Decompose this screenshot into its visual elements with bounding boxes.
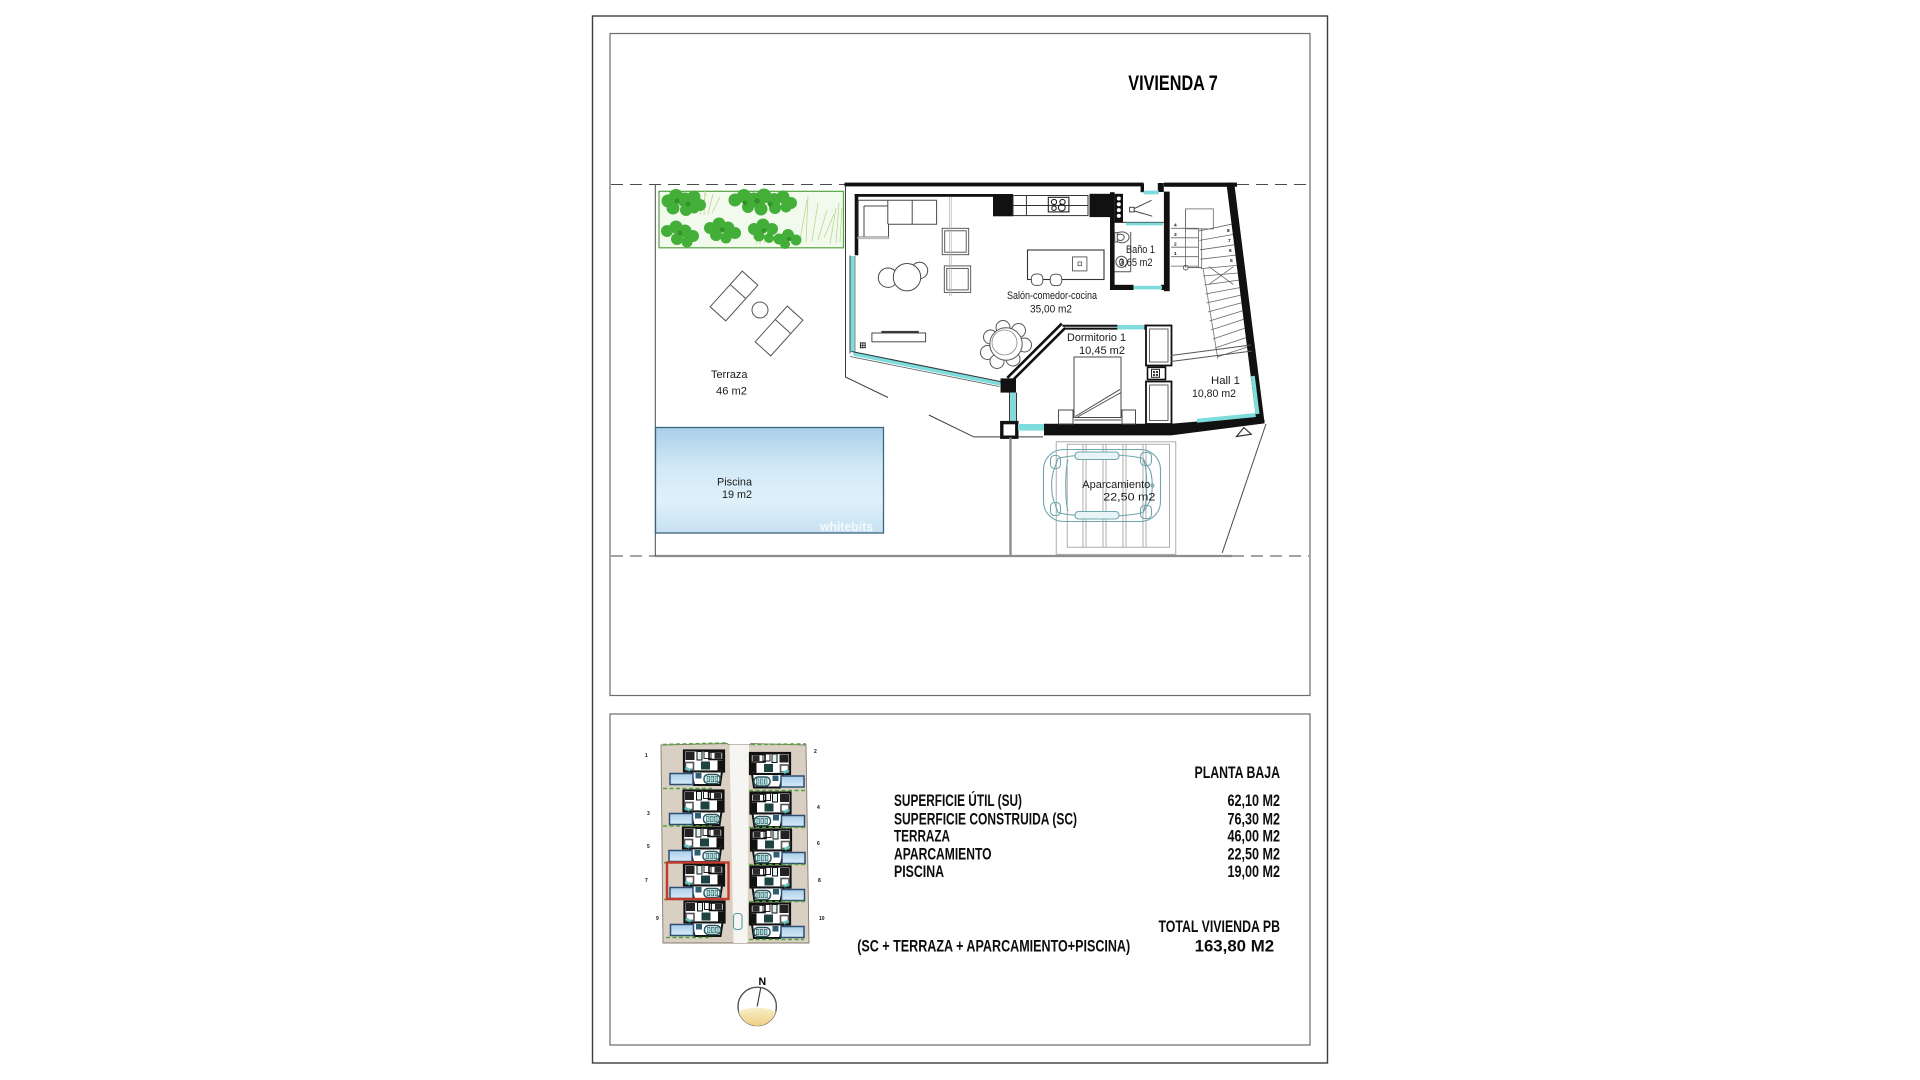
svg-text:5: 5 [647,844,650,850]
svg-text:2: 2 [1174,242,1177,248]
svg-text:VIVIENDA 7: VIVIENDA 7 [1128,71,1218,95]
svg-text:Terraza: Terraza [711,369,748,381]
svg-text:Dormitorio 1: Dormitorio 1 [1067,332,1126,344]
svg-text:7: 7 [645,878,648,884]
svg-text:2: 2 [814,749,817,755]
svg-text:6: 6 [1229,248,1232,254]
svg-text:9: 9 [656,916,659,922]
svg-text:Hall 1: Hall 1 [1211,375,1240,387]
svg-text:TOTAL VIVIENDA PB: TOTAL VIVIENDA PB [1159,918,1281,936]
svg-text:46,00 M2: 46,00 M2 [1228,828,1281,846]
svg-text:3: 3 [1174,232,1177,238]
svg-text:Aparcamiento: Aparcamiento [1082,479,1150,491]
svg-text:22,50 m2: 22,50 m2 [1103,492,1155,504]
svg-text:35,00 m2: 35,00 m2 [1030,304,1072,316]
svg-text:8: 8 [1227,228,1230,234]
svg-text:10: 10 [819,916,825,922]
svg-text:62,10 M2: 62,10 M2 [1228,792,1281,810]
svg-text:4: 4 [1174,223,1177,229]
svg-text:22,50 M2: 22,50 M2 [1228,846,1281,864]
svg-text:whitebits: whitebits [819,519,873,534]
svg-text:1: 1 [1174,251,1177,257]
svg-text:(SC + TERRAZA + APARCAMIENTO+P: (SC + TERRAZA + APARCAMIENTO+PISCINA) [857,938,1130,956]
svg-text:1: 1 [645,753,648,759]
svg-text:163,80 M2: 163,80 M2 [1195,938,1275,956]
svg-text:6: 6 [817,841,820,847]
svg-text:76,30 M2: 76,30 M2 [1228,811,1281,829]
svg-text:46 m2: 46 m2 [716,386,747,398]
svg-text:10,80 m2: 10,80 m2 [1192,388,1236,400]
svg-text:7: 7 [1228,238,1231,244]
svg-text:APARCAMIENTO: APARCAMIENTO [894,846,992,864]
svg-text:PLANTA BAJA: PLANTA BAJA [1195,763,1281,782]
svg-text:10,45 m2: 10,45 m2 [1079,345,1125,357]
svg-text:19 m2: 19 m2 [722,489,752,501]
svg-text:Piscina: Piscina [717,477,753,489]
svg-text:19,00 M2: 19,00 M2 [1228,863,1281,881]
svg-text:PISCINA: PISCINA [894,863,944,881]
svg-text:5: 5 [1230,258,1233,264]
svg-text:SUPERFICIE ÚTIL (SU): SUPERFICIE ÚTIL (SU) [894,791,1022,810]
svg-text:N: N [758,976,766,988]
svg-text:Baño 1: Baño 1 [1126,244,1155,256]
svg-text:TERRAZA: TERRAZA [894,828,950,846]
svg-text:3: 3 [647,811,650,817]
svg-text:SUPERFICIE CONSTRUIDA (SC): SUPERFICIE CONSTRUIDA (SC) [894,811,1077,829]
svg-text:3,65 m2: 3,65 m2 [1119,257,1153,269]
svg-text:Salón-comedor-cocina: Salón-comedor-cocina [1007,290,1098,302]
svg-text:4: 4 [817,805,820,811]
svg-text:8: 8 [818,878,821,884]
